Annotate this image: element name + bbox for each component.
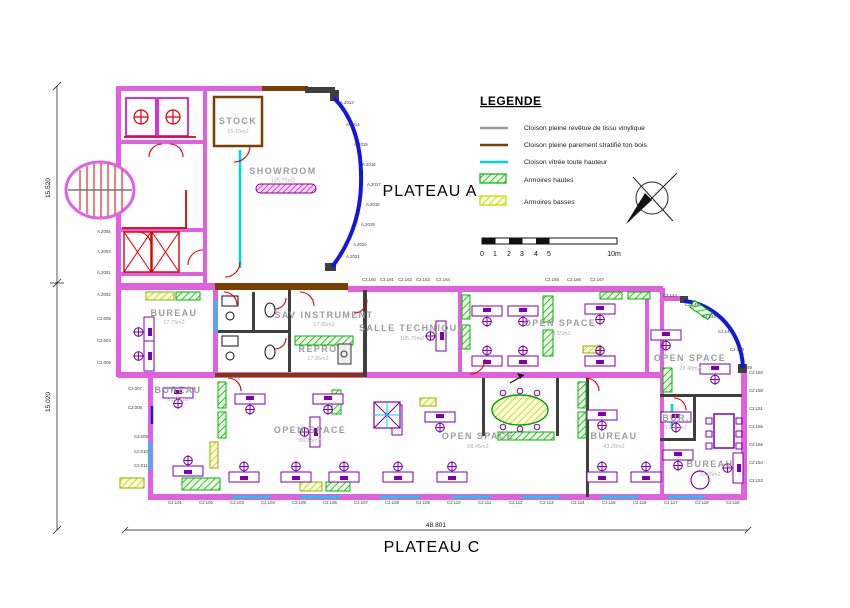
svg-text:C2.009: C2.009	[134, 434, 148, 439]
svg-text:C2.113: C2.113	[540, 500, 554, 505]
legend-item-4: Armoires basses	[480, 196, 575, 206]
codes-right-column: C2.150C2.158C2.151C2.156C2.155C2.154C2.1…	[749, 370, 763, 483]
svg-text:C2.111: C2.111	[478, 500, 492, 505]
svg-text:C2.007: C2.007	[128, 386, 142, 391]
svg-text:C2.103: C2.103	[230, 500, 244, 505]
svg-text:SHOWROOM: SHOWROOM	[249, 166, 316, 176]
svg-text:17.85m2: 17.85m2	[313, 322, 334, 328]
legend-title: LEGENDE	[480, 94, 542, 108]
svg-text:C2.117: C2.117	[664, 500, 678, 505]
svg-text:OPEN SPACE: OPEN SPACE	[524, 318, 596, 328]
svg-text:C2.163: C2.163	[416, 277, 430, 282]
room-label-bureau-1775: BUREAU17.75m2	[151, 308, 198, 326]
svg-text:A.2002: A.2002	[97, 292, 111, 297]
legend: LEGENDE Cloison pleine revêtue de tissu …	[480, 94, 647, 206]
room-label-bur: BUR.13.40m2	[662, 413, 690, 431]
svg-text:C2.107: C2.107	[354, 500, 368, 505]
svg-text:C2.146: C2.146	[702, 314, 716, 319]
room-label-bureau-3185: BUREAU31.85m2	[155, 385, 202, 403]
codes-left-lower: C2.007C2.008C2.009C2.010C2.011	[128, 386, 148, 468]
high-cabinet-swatch	[480, 174, 506, 183]
svg-text:C2.147: C2.147	[718, 329, 732, 334]
svg-text:86.85m2: 86.85m2	[299, 438, 320, 444]
svg-text:A.2019: A.2019	[361, 222, 375, 227]
svg-text:C2.108: C2.108	[385, 500, 399, 505]
svg-text:C2.158: C2.158	[749, 388, 763, 393]
svg-text:Cloison vitrée toute hauteur: Cloison vitrée toute hauteur	[524, 159, 608, 166]
svg-text:105.75m2: 105.75m2	[271, 178, 295, 184]
wc-fixtures	[222, 296, 275, 360]
svg-text:STOCK: STOCK	[219, 116, 257, 126]
floor-plan-page: 15.520 15.020 48.801	[0, 0, 850, 608]
room-label-showroom: SHOWROOM105.75m2	[249, 166, 316, 184]
svg-text:C2.005: C2.005	[97, 316, 111, 321]
svg-text:A.2018: A.2018	[366, 202, 380, 207]
svg-text:BUREAU: BUREAU	[687, 459, 734, 469]
room-label-bureau-3025: BUREAU30.25m2	[687, 459, 734, 478]
svg-text:C2.101: C2.101	[168, 500, 182, 505]
svg-text:C2.144: C2.144	[663, 293, 677, 298]
svg-text:C2.167: C2.167	[590, 277, 604, 282]
svg-text:C2.148: C2.148	[730, 347, 744, 352]
svg-text:C2.116: C2.116	[633, 500, 647, 505]
svg-text:C2.109: C2.109	[416, 500, 430, 505]
svg-text:OPEN SPACE: OPEN SPACE	[442, 431, 514, 441]
legend-item-0: Cloison pleine revêtue de tissu vinyliqu…	[480, 125, 645, 132]
svg-text:C2.006: C2.006	[97, 360, 111, 365]
svg-text:C2.104: C2.104	[261, 500, 275, 505]
svg-text:C2.011: C2.011	[134, 463, 148, 468]
svg-text:13.40m2: 13.40m2	[665, 425, 686, 431]
svg-text:105.75m2: 105.75m2	[400, 336, 424, 342]
codes-left-column: A.2004A.2003A.2001A.2002C2.005C2.004C2.0…	[97, 229, 111, 365]
room-label-bureau-4320: BUREAU43.20m2	[591, 431, 638, 450]
svg-text:C2.115: C2.115	[602, 500, 616, 505]
dim-bottom: 48.801	[426, 522, 446, 529]
svg-text:C2.110: C2.110	[447, 500, 461, 505]
svg-text:C2.150: C2.150	[749, 370, 763, 375]
svg-text:A.2021: A.2021	[346, 254, 360, 259]
svg-text:C2.106: C2.106	[323, 500, 337, 505]
svg-text:2: 2	[507, 251, 511, 258]
low-cabinet-swatch	[480, 196, 506, 205]
room-label-salle-technique: SALLE TECHNIQUE105.75m2	[359, 323, 465, 342]
svg-text:74.55m2: 74.55m2	[549, 331, 570, 337]
svg-text:68.45m2: 68.45m2	[467, 444, 488, 450]
svg-text:A.2004: A.2004	[97, 229, 111, 234]
svg-text:4: 4	[534, 251, 538, 258]
svg-text:C2.156: C2.156	[749, 424, 763, 429]
scale-bar: 012345 10m	[480, 238, 621, 258]
svg-text:REPRO: REPRO	[298, 344, 337, 354]
svg-text:A.2016: A.2016	[362, 162, 376, 167]
legend-item-1: Cloison pleine parement stratifié ton bo…	[480, 142, 647, 149]
svg-text:A.2001: A.2001	[97, 270, 111, 275]
svg-text:A.2015: A.2015	[354, 142, 368, 147]
svg-text:OPEN SPACE: OPEN SPACE	[274, 425, 346, 435]
dim-left-upper: 15.520	[45, 178, 52, 198]
svg-text:C2.160: C2.160	[362, 277, 376, 282]
svg-text:C2.114: C2.114	[571, 500, 585, 505]
floor-plan-canvas: 15.520 15.020 48.801	[0, 0, 850, 608]
room-label-open-space-8685: OPEN SPACE86.85m2	[274, 425, 346, 444]
room-label-open-space-7455: OPEN SPACE74.55m2	[524, 318, 596, 337]
legend-item-2: Cloison vitrée toute hauteur	[480, 159, 608, 166]
svg-text:C2.008: C2.008	[128, 405, 142, 410]
svg-text:A.2020: A.2020	[353, 242, 367, 247]
svg-text:C2.165: C2.165	[545, 277, 559, 282]
svg-text:SAV INSTRUMENT: SAV INSTRUMENT	[275, 310, 374, 320]
svg-text:C2.161: C2.161	[380, 277, 394, 282]
svg-text:5: 5	[547, 251, 551, 258]
svg-text:15.15m2: 15.15m2	[227, 129, 248, 135]
plateau-a-title: PLATEAU A	[383, 183, 478, 200]
svg-text:3: 3	[520, 251, 524, 258]
svg-text:31.85m2: 31.85m2	[167, 397, 188, 403]
svg-text:C2.145: C2.145	[685, 302, 699, 307]
svg-text:SALLE TECHNIQUE: SALLE TECHNIQUE	[359, 323, 465, 333]
svg-text:BUREAU: BUREAU	[591, 431, 638, 441]
svg-text:C2.118: C2.118	[695, 500, 709, 505]
svg-text:C2.164: C2.164	[436, 277, 450, 282]
svg-text:C2.119: C2.119	[726, 500, 740, 505]
svg-text:C2.010: C2.010	[134, 449, 148, 454]
svg-text:C2.004: C2.004	[97, 338, 111, 343]
svg-text:BUREAU: BUREAU	[155, 385, 202, 395]
room-label-repro: REPRO17.85m2	[298, 344, 337, 362]
svg-text:BUREAU: BUREAU	[151, 308, 198, 318]
svg-text:C2.162: C2.162	[398, 277, 412, 282]
svg-text:C2.151: C2.151	[749, 406, 763, 411]
svg-text:A.2017: A.2017	[367, 182, 381, 187]
room-label-stock: STOCK15.15m2	[219, 116, 257, 135]
svg-text:0: 0	[480, 251, 484, 258]
svg-text:43.20m2: 43.20m2	[603, 444, 624, 450]
svg-text:C2.154: C2.154	[749, 460, 763, 465]
svg-text:Armoires hautes: Armoires hautes	[524, 177, 574, 184]
svg-text:17.75m2: 17.75m2	[163, 320, 184, 326]
svg-text:C2.105: C2.105	[292, 500, 306, 505]
plateau-c-title: PLATEAU C	[384, 539, 481, 556]
scale-ticks: 012345	[480, 251, 551, 258]
svg-text:28.40m2: 28.40m2	[679, 366, 700, 372]
svg-text:Armoires basses: Armoires basses	[524, 199, 575, 206]
svg-text:Cloison pleine parement strati: Cloison pleine parement stratifié ton bo…	[524, 142, 647, 149]
svg-text:C2.153: C2.153	[749, 478, 763, 483]
svg-text:C2.155: C2.155	[749, 442, 763, 447]
svg-text:30.25m2: 30.25m2	[699, 472, 720, 478]
codes-bottom-row: C2.101C2.102C2.103C2.104C2.105C2.106C2.1…	[168, 500, 740, 505]
svg-text:C2.166: C2.166	[567, 277, 581, 282]
codes-top-band: C2.160C2.161C2.162C2.163C2.164C2.165C2.1…	[362, 277, 604, 282]
svg-text:OPEN SPACE: OPEN SPACE	[654, 353, 726, 363]
cabinets	[120, 292, 712, 491]
svg-text:A.2003: A.2003	[97, 249, 111, 254]
svg-text:C2.112: C2.112	[509, 500, 523, 505]
room-label-open-space-6845: OPEN SPACE68.45m2	[442, 431, 514, 450]
svg-text:Cloison pleine revêtue de tiss: Cloison pleine revêtue de tissu vinyliqu…	[524, 125, 645, 132]
svg-text:C2.102: C2.102	[199, 500, 213, 505]
svg-text:BUR.: BUR.	[662, 413, 690, 423]
svg-text:A.2013: A.2013	[340, 100, 354, 105]
north-arrow-icon	[626, 173, 677, 224]
svg-text:A.2014: A.2014	[346, 122, 360, 127]
legend-item-3: Armoires hautes	[480, 174, 574, 184]
scale-end-label: 10m	[607, 251, 621, 258]
dim-left-lower: 15.020	[45, 392, 52, 412]
svg-text:17.85m2: 17.85m2	[307, 356, 328, 362]
svg-text:1: 1	[493, 251, 497, 258]
stairwell-and-elevators	[66, 98, 188, 272]
